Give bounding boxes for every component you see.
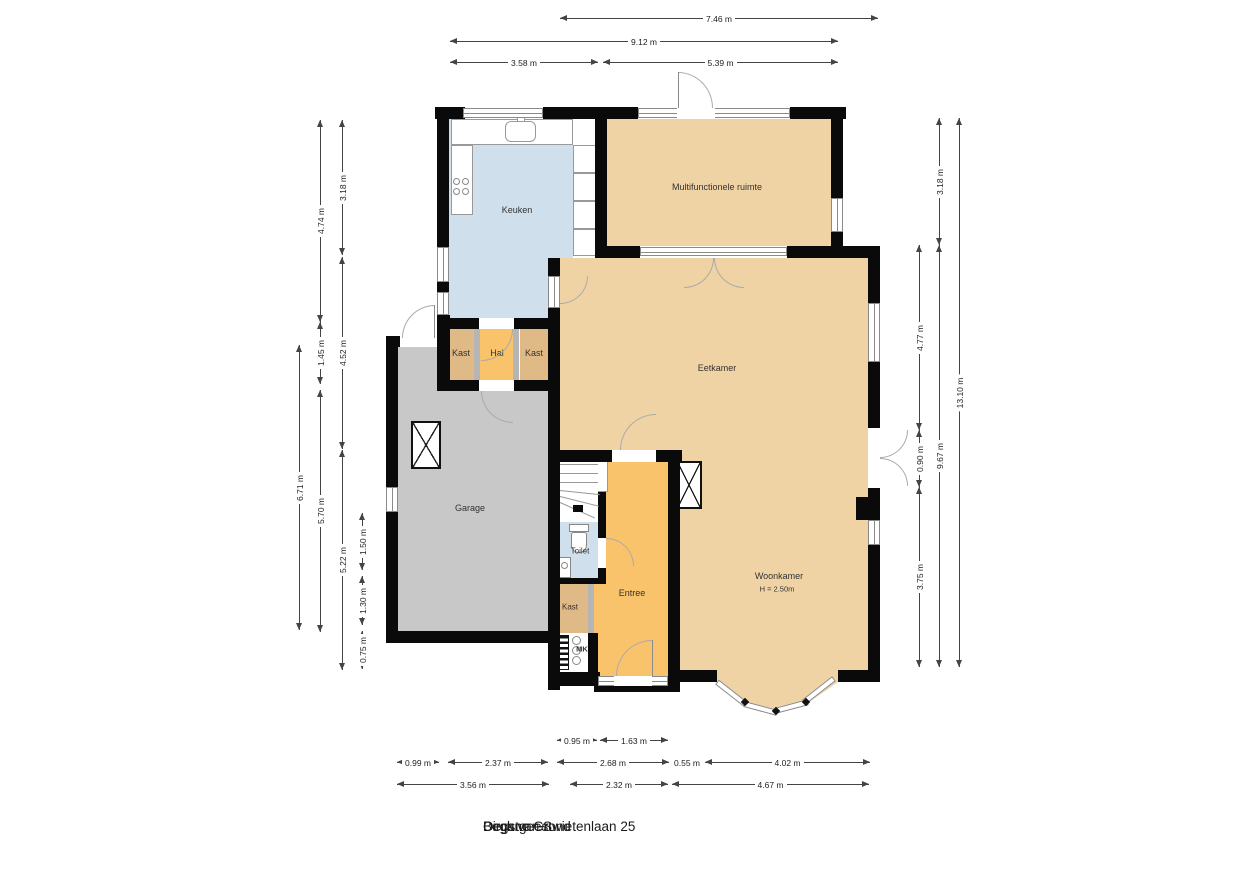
window (640, 247, 787, 256)
wall (386, 631, 560, 643)
stove-burner-icon (453, 178, 460, 185)
door-leaf (434, 305, 435, 338)
room-woonkamer (680, 455, 868, 670)
wall (548, 578, 606, 584)
door-opening (479, 318, 514, 329)
wall (868, 362, 880, 428)
wall (548, 672, 600, 686)
stove-burner-icon (462, 178, 469, 185)
dimension-label: 7.46 m (703, 14, 735, 24)
dimension-label: 1.45 m (316, 337, 326, 369)
dimension-label: 3.58 m (508, 58, 540, 68)
wall (787, 246, 880, 258)
label-garage: Garage (455, 503, 485, 513)
dimension-line: 5.70 m (316, 390, 325, 632)
wall (668, 670, 717, 682)
stair-post (573, 505, 583, 512)
dimension-line: 2.37 m (448, 758, 548, 767)
dimension-label: 0.90 m (915, 443, 925, 475)
dimension-line: 0.75 m (358, 631, 367, 669)
partition-wall (474, 329, 480, 380)
dimension-line: 1.63 m (600, 736, 668, 745)
dimension-line: 1.45 m (316, 322, 325, 384)
wall (868, 545, 880, 682)
label-woonkamer-height: H = 2.50m (760, 585, 795, 594)
wall (600, 246, 640, 258)
label-woonkamer: Woonkamer (755, 571, 803, 581)
dimension-label: 2.37 m (482, 758, 514, 768)
dimension-line: 3.18 m (935, 118, 944, 245)
dimension-line: 5.22 m (338, 450, 347, 670)
label-kast-rechts: Kast (525, 348, 543, 358)
dimension-line: 4.74 m (316, 120, 325, 322)
dimension-line: 1.50 m (358, 513, 367, 570)
wall (856, 497, 868, 520)
plan-title-line3: Oegstgeest (483, 818, 552, 835)
dimension-line: 4.52 m (338, 257, 347, 449)
stair-step-line (560, 464, 598, 465)
dimension-label: 5.70 m (316, 495, 326, 527)
dimension-label: 4.02 m (772, 758, 804, 768)
dimension-label: 4.74 m (316, 205, 326, 237)
label-kast-gang: Kast (562, 603, 578, 612)
wall (437, 318, 479, 329)
stair-step-line (560, 473, 598, 474)
dimension-label: 2.32 m (603, 780, 635, 790)
dimension-label: 6.71 m (295, 472, 305, 504)
door-opening (598, 538, 606, 568)
door-swing-arc (880, 430, 908, 458)
wall (598, 492, 606, 538)
door-opening (677, 107, 715, 119)
partition-wall (513, 329, 519, 380)
dimension-label: 4.52 m (338, 337, 348, 369)
meter-icon (572, 656, 581, 665)
wall (548, 450, 612, 462)
dimension-line: 0.90 m (915, 430, 924, 487)
label-eetkamer: Eetkamer (698, 363, 737, 373)
window (463, 108, 543, 118)
label-kast-links: Kast (452, 348, 470, 358)
wall (868, 258, 880, 303)
door-swing-arc (880, 458, 908, 486)
wall (668, 455, 680, 690)
dimension-line: 13.10 m (955, 118, 964, 667)
dimension-label: 9.67 m (935, 440, 945, 472)
dimension-line: 3.56 m (397, 780, 549, 789)
dimension-line: 0.55 m (672, 758, 702, 767)
wall (386, 338, 398, 487)
stair-step-line (560, 482, 598, 483)
door-opening (479, 380, 514, 391)
dimension-line: 2.32 m (570, 780, 668, 789)
dimension-label: 5.39 m (705, 58, 737, 68)
dimension-label: 3.75 m (915, 561, 925, 593)
dimension-line: 4.77 m (915, 245, 924, 430)
dimension-label: 4.67 m (755, 780, 787, 790)
label-entree: Entree (619, 588, 646, 598)
dimension-line: 3.18 m (338, 120, 347, 255)
dimension-line: 4.67 m (672, 780, 869, 789)
wall (437, 107, 449, 247)
label-meterkast: MK (576, 645, 588, 654)
dimension-line: 4.02 m (705, 758, 870, 767)
toilet-tank (569, 524, 589, 532)
door-opening (612, 450, 656, 462)
dimension-label: 1.63 m (618, 736, 650, 746)
dimension-line: 0.95 m (557, 736, 597, 745)
dimension-line: 6.71 m (295, 345, 304, 630)
stove-burner-icon (462, 188, 469, 195)
door-swing-arc (402, 305, 435, 338)
wall (386, 512, 398, 643)
wall (437, 380, 479, 391)
label-toilet: Toilet (571, 547, 590, 556)
room-keuken-lower (449, 258, 548, 318)
window (868, 303, 880, 362)
window (548, 276, 560, 308)
dimension-label: 2.68 m (597, 758, 629, 768)
stove-burner-icon (453, 188, 460, 195)
window (386, 487, 398, 512)
dimension-label: 3.18 m (338, 172, 348, 204)
wall (595, 107, 607, 258)
label-keuken: Keuken (502, 205, 533, 215)
wall (514, 380, 550, 391)
door-leaf (652, 640, 653, 676)
dimension-line: 7.46 m (560, 14, 878, 23)
wall (437, 336, 444, 347)
wall (514, 318, 550, 329)
window (831, 198, 843, 232)
dimension-label: 0.55 m (671, 758, 703, 768)
wall (656, 450, 682, 462)
dimension-label: 3.56 m (457, 780, 489, 790)
dimension-label: 13.10 m (955, 374, 965, 411)
dimension-label: 0.75 m (358, 634, 368, 666)
window (868, 520, 880, 545)
dimension-line: 3.58 m (450, 58, 598, 67)
window (437, 247, 449, 282)
chimney-garage (411, 421, 441, 469)
kitchen-sink (505, 121, 536, 142)
toilet-sink-basin (561, 562, 568, 569)
wall (548, 258, 560, 276)
dimension-label: 1.30 m (358, 585, 368, 617)
wall (838, 670, 880, 682)
wall (868, 488, 880, 520)
dimension-line: 3.75 m (915, 487, 924, 667)
dimension-line: 9.12 m (450, 37, 838, 46)
door-opening (868, 428, 880, 488)
dimension-label: 3.18 m (935, 166, 945, 198)
room-garage-upper (398, 347, 437, 390)
room-eetkamer (560, 258, 868, 455)
dimension-line: 2.68 m (557, 758, 669, 767)
dimension-label: 4.77 m (915, 322, 925, 354)
door-opening (614, 676, 652, 686)
label-multifunctionele-ruimte: Multifunctionele ruimte (672, 182, 762, 192)
dimension-label: 5.22 m (338, 544, 348, 576)
window (437, 292, 449, 315)
dimension-line: 5.39 m (603, 58, 838, 67)
door-swing-arc (678, 72, 713, 108)
dimension-line: 0.99 m (397, 758, 439, 767)
dimension-label: 1.50 m (358, 526, 368, 558)
dimension-label: 9.12 m (628, 37, 660, 47)
dimension-line: 1.30 m (358, 576, 367, 625)
dimension-label: 0.99 m (402, 758, 434, 768)
dimension-label: 0.95 m (561, 736, 593, 746)
wall (588, 633, 598, 676)
wall (548, 308, 560, 690)
partition-wall (588, 584, 594, 633)
dimension-line: 9.67 m (935, 245, 944, 667)
door-leaf (678, 72, 679, 108)
floor-plan-page: Keuken Multifunctionele ruimte Eetkamer … (0, 0, 1259, 890)
